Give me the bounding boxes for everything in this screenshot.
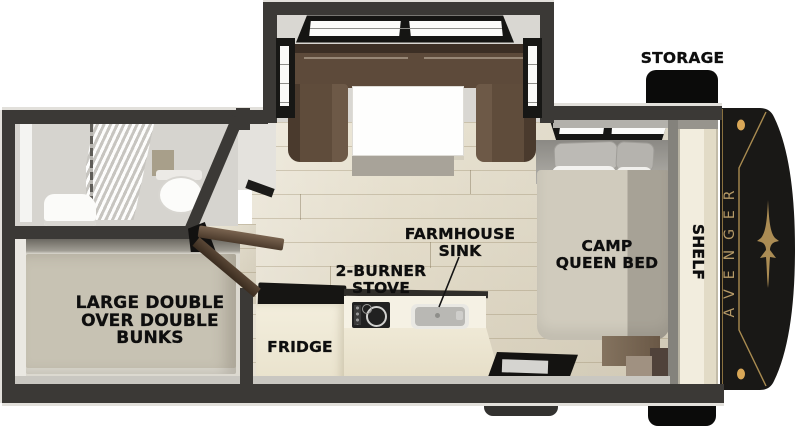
brand-text: AVENGER	[722, 181, 738, 318]
storage-label: STORAGE	[630, 50, 735, 67]
dinette-rug	[352, 156, 454, 176]
gold-rivet-top	[737, 120, 745, 131]
front-wall-lining	[553, 120, 671, 128]
stove-label-line1: 2-BURNER	[325, 263, 437, 280]
wall-bottom	[2, 384, 724, 403]
wall-left	[2, 110, 15, 403]
sink-label: FARMHOUSE SINK	[400, 226, 520, 259]
stove-burner-small	[362, 304, 372, 314]
fridge-label: FRIDGE	[256, 339, 344, 356]
window-pane	[280, 46, 289, 106]
bedroom-right-wall-face	[668, 116, 678, 388]
slideout-side-window-right	[523, 38, 542, 118]
dinette-table	[352, 86, 464, 156]
dinette-sofa-arm-left	[288, 84, 348, 162]
bunks-label-line1: LARGE DOUBLE	[60, 295, 240, 313]
stove-label-line2: STOVE	[325, 280, 437, 297]
sofa-back-seam-right	[424, 57, 528, 59]
corner-wall-face	[238, 122, 276, 190]
gold-rivet-bottom	[737, 369, 745, 380]
shelf-label: SHELF	[690, 217, 706, 287]
bed-label-line1: CAMP	[545, 238, 669, 255]
sofa-back-seam-left	[304, 57, 408, 59]
stove-knob-strip	[354, 305, 361, 325]
two-burner-stove	[352, 302, 390, 328]
sink-label-line2: SINK	[400, 243, 520, 260]
bed-label-line2: QUEEN BED	[545, 255, 669, 272]
shower-curtain-rod	[90, 124, 93, 206]
rv-floorplan: AVENGER STORAGE CAMP QUEEN BED SHELF FAR…	[0, 0, 800, 429]
bathroom-wall-highlight	[20, 124, 32, 222]
bottom-wall-lining	[14, 376, 670, 384]
sink-drain	[435, 313, 440, 318]
bathroom-sink	[44, 194, 96, 226]
wall-top-left	[2, 110, 268, 124]
slideout-rear-window	[296, 14, 514, 44]
bunks-label-line3: BUNKS	[60, 330, 240, 348]
bunk-wall-lining	[14, 238, 26, 384]
bunks-label: LARGE DOUBLE OVER DOUBLE BUNKS	[60, 295, 240, 348]
wall-top-right	[552, 106, 722, 120]
sink-label-line1: FARMHOUSE	[400, 226, 520, 243]
window-pane	[528, 46, 537, 106]
wall-bunk-right	[240, 288, 253, 390]
entry-inside-step	[502, 359, 548, 374]
trim	[2, 403, 724, 406]
wall-slideout-top	[263, 2, 554, 15]
wall-bathroom-stub	[236, 108, 250, 130]
wall-slideout-right	[540, 2, 554, 123]
window-mullion	[310, 28, 502, 29]
wall-bathroom-divider	[2, 226, 192, 239]
slideout-side-window-left	[276, 38, 295, 118]
bed-label: CAMP QUEEN BED	[545, 238, 669, 271]
stove-label: 2-BURNER STOVE	[325, 263, 437, 296]
wall-slideout-left	[263, 2, 277, 123]
dinette-sofa-back	[288, 44, 538, 88]
front-cap: AVENGER	[712, 100, 800, 398]
